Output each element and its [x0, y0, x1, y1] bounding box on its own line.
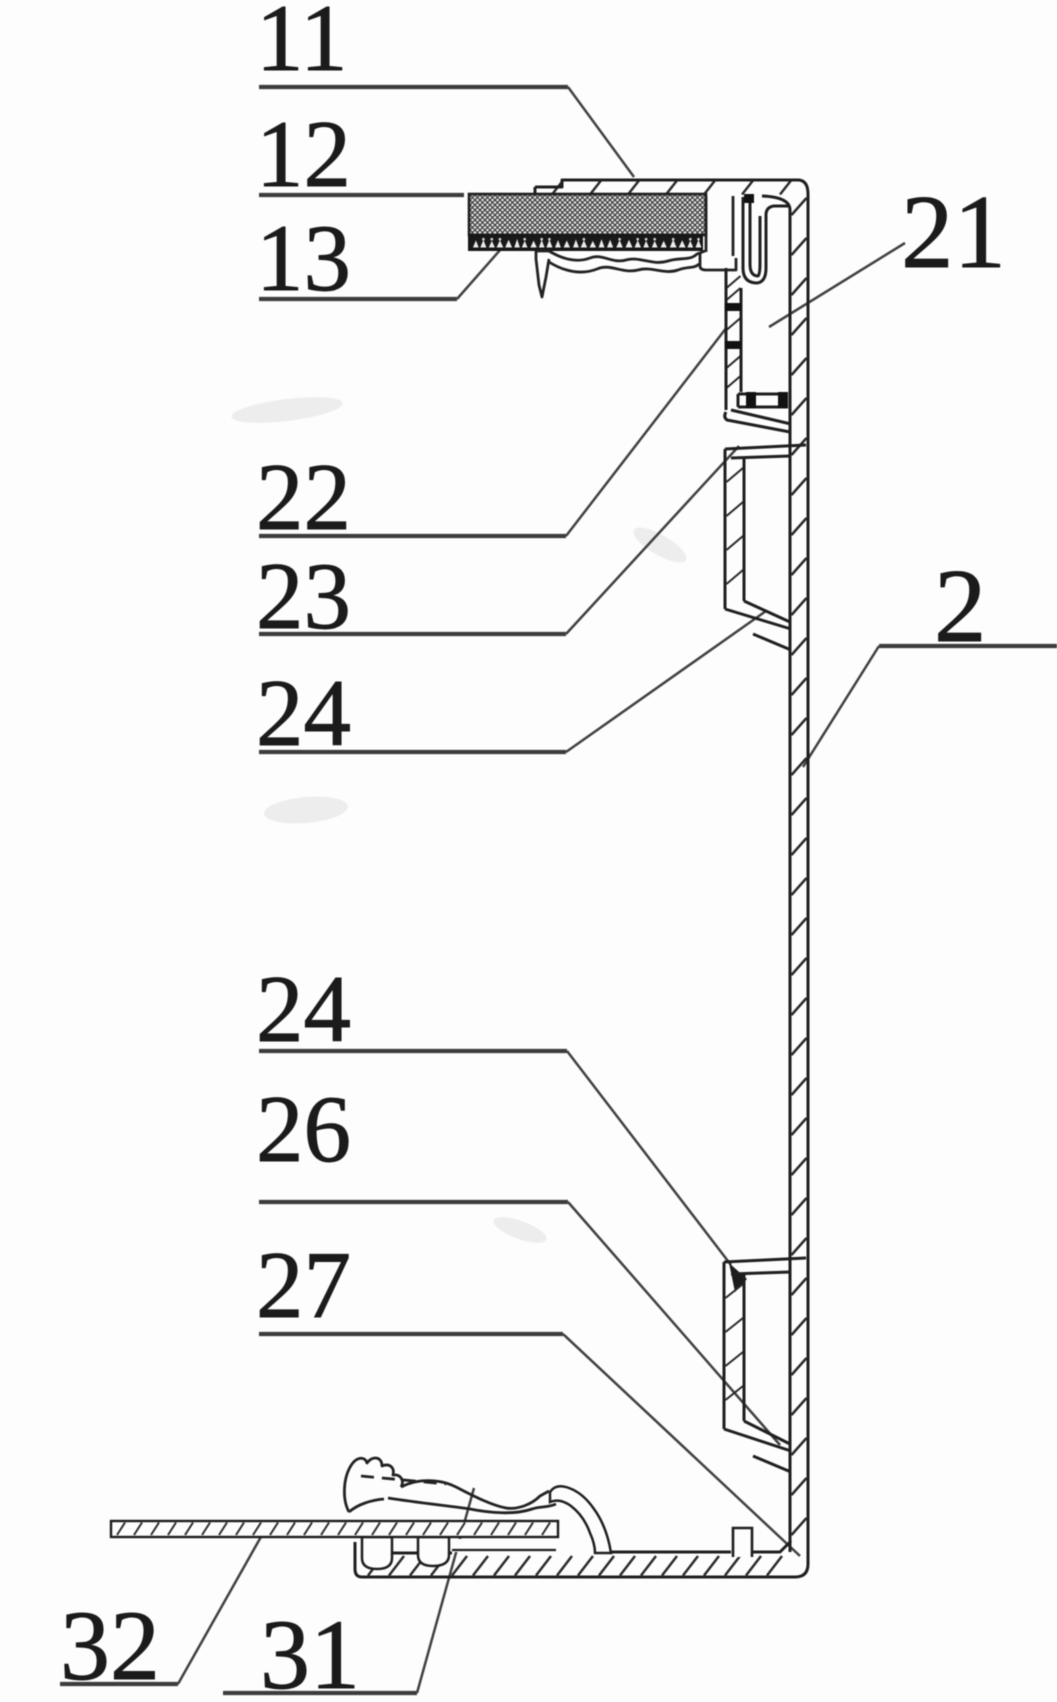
svg-text:24: 24	[256, 956, 351, 1062]
svg-text:13: 13	[256, 205, 351, 311]
svg-text:11: 11	[256, 0, 347, 91]
svg-text:26: 26	[256, 1076, 351, 1182]
svg-text:23: 23	[256, 543, 351, 649]
svg-text:2: 2	[934, 547, 987, 664]
svg-text:27: 27	[256, 1232, 351, 1338]
svg-text:31: 31	[260, 1599, 360, 1702]
svg-text:22: 22	[256, 444, 351, 550]
svg-text:32: 32	[60, 1590, 160, 1701]
svg-text:12: 12	[256, 101, 351, 207]
svg-text:24: 24	[256, 660, 351, 766]
svg-text:21: 21	[901, 173, 1006, 290]
